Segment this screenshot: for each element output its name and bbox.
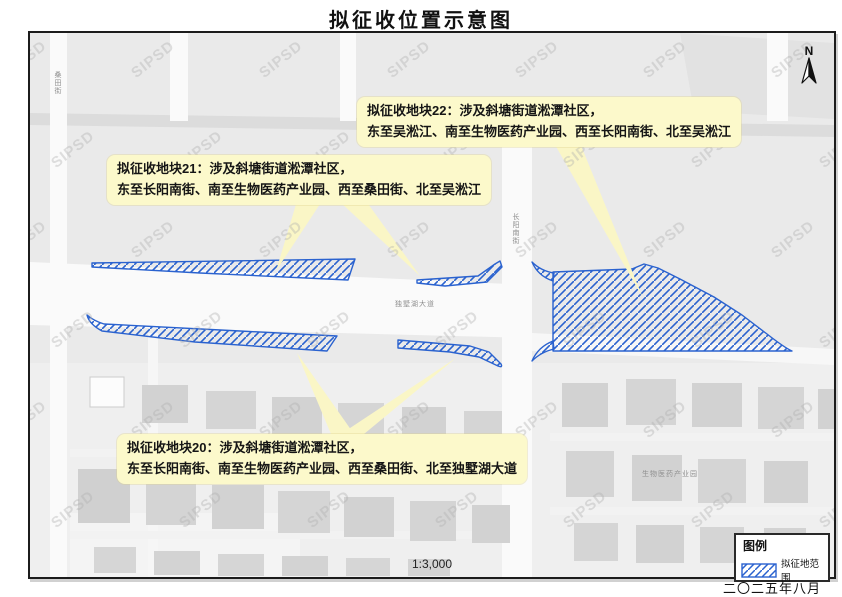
- road-vertical-5: [767, 33, 788, 121]
- road-vertical-2: [170, 33, 188, 121]
- callout-block22: 拟征收地块22：涉及斜塘街道淞潭社区， 东至吴淞江、南至生物医药产业园、西至长阳…: [357, 97, 741, 147]
- map-scale: 1:3,000: [382, 557, 482, 571]
- legend: 图例 拟征地范围: [734, 533, 830, 582]
- road-vertical-left: [50, 33, 67, 577]
- callout-block20: 拟征收地块20：涉及斜塘街道淞潭社区， 东至长阳南街、南至生物医药产业园、西至桑…: [117, 434, 527, 484]
- north-arrow: N: [796, 45, 822, 90]
- callout-text: 东至长阳南街、南至生物医药产业园、西至桑田街、北至独墅湖大道: [127, 459, 517, 480]
- callout-text: 拟征收地块22：涉及斜塘街道淞潭社区，: [367, 101, 731, 122]
- callout-text: 东至吴淞江、南至生物医药产业园、西至长阳南街、北至吴淞江: [367, 122, 731, 143]
- page-title: 拟征收位置示意图: [0, 4, 842, 33]
- legend-hatch-swatch-icon: [741, 563, 777, 578]
- campus-lane: [550, 507, 834, 515]
- map-area: SIPSDSIPSDSIPSDSIPSDSIPSDSIPSDSIPSDSIPSD…: [28, 31, 836, 579]
- callout-block21: 拟征收地块21：涉及斜塘街道淞潭社区， 东至长阳南街、南至生物医药产业园、西至桑…: [107, 155, 491, 205]
- campus-lane: [550, 433, 834, 441]
- legend-title: 图例: [743, 537, 828, 554]
- legend-item-label: 拟征地范围: [781, 556, 828, 584]
- north-label: N: [796, 45, 822, 57]
- callout-text: 拟征收地块21：涉及斜塘街道淞潭社区，: [117, 159, 481, 180]
- road-vertical-3: [340, 33, 356, 121]
- north-arrow-icon: [800, 57, 818, 85]
- callout-text: 东至长阳南街、南至生物医药产业园、西至桑田街、北至吴淞江: [117, 180, 481, 201]
- callout-text: 拟征收地块20：涉及斜塘街道淞潭社区，: [127, 438, 517, 459]
